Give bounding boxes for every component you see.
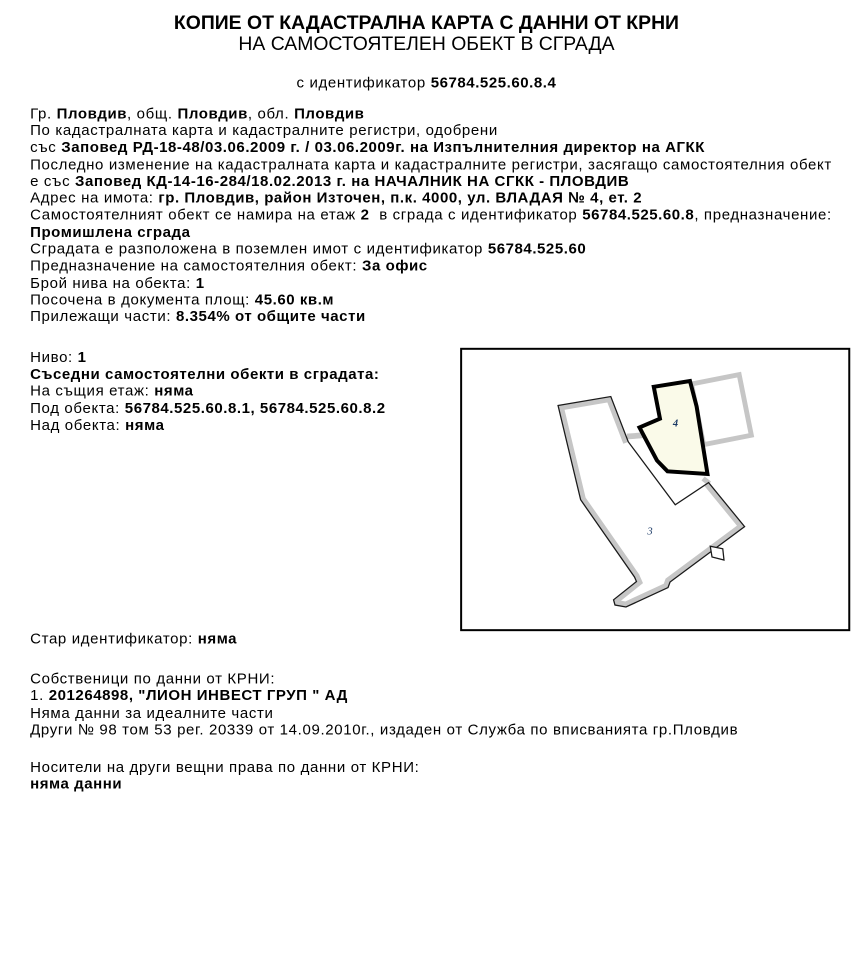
svg-text:3: 3 — [646, 526, 652, 537]
svg-text:4: 4 — [672, 418, 678, 429]
